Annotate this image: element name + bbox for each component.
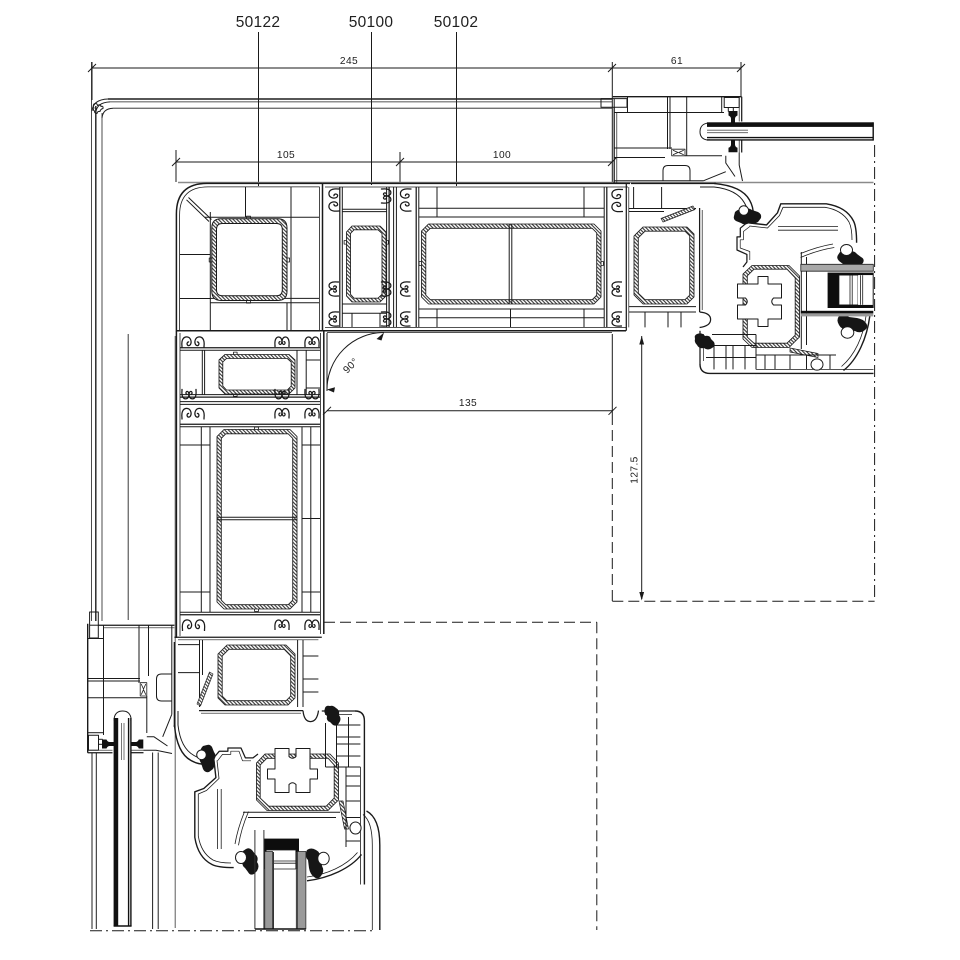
svg-text:105: 105 <box>277 150 295 161</box>
svg-text:135: 135 <box>459 398 477 409</box>
svg-text:50102: 50102 <box>434 14 479 31</box>
svg-text:90°: 90° <box>341 356 361 376</box>
svg-text:50100: 50100 <box>349 14 394 31</box>
svg-text:245: 245 <box>340 56 358 67</box>
svg-text:61: 61 <box>671 56 683 67</box>
svg-text:127.5: 127.5 <box>630 456 641 484</box>
svg-text:50122: 50122 <box>236 14 281 31</box>
svg-text:100: 100 <box>493 150 511 161</box>
